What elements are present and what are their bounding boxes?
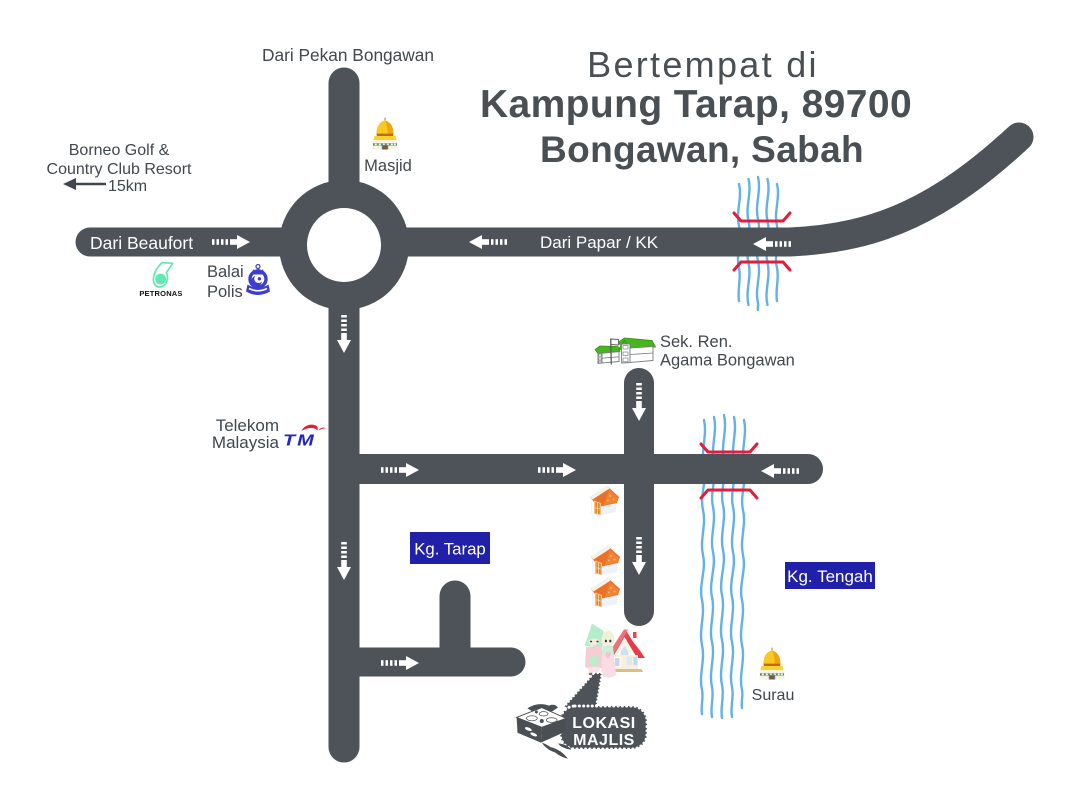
svg-text:Masjid: Masjid <box>364 157 412 175</box>
svg-text:15km: 15km <box>108 178 147 195</box>
svg-text:Balai: Balai <box>207 263 244 281</box>
svg-text:Sek. Ren.: Sek. Ren. <box>660 333 732 351</box>
svg-text:Dari Beaufort: Dari Beaufort <box>90 233 193 253</box>
svg-text:Bongawan, Sabah: Bongawan, Sabah <box>540 129 864 170</box>
svg-text:Dari Pekan Bongawan: Dari Pekan Bongawan <box>262 45 434 65</box>
svg-text:Country Club Resort: Country Club Resort <box>47 161 193 178</box>
svg-text:Borneo Golf &: Borneo Golf & <box>69 142 170 159</box>
svg-text:Malaysia: Malaysia <box>212 433 280 452</box>
svg-text:Kampung Tarap, 89700: Kampung Tarap, 89700 <box>480 83 912 126</box>
svg-text:Dari Papar / KK: Dari Papar / KK <box>540 233 659 252</box>
svg-text:Agama Bongawan: Agama Bongawan <box>660 352 795 370</box>
svg-text:PETRONAS: PETRONAS <box>139 289 182 298</box>
svg-text:MAJLIS: MAJLIS <box>573 732 635 749</box>
svg-text:LOKASI: LOKASI <box>572 715 635 732</box>
svg-text:Kg. Tarap: Kg. Tarap <box>414 540 486 559</box>
svg-text:Polis: Polis <box>207 283 243 301</box>
svg-text:Bertempat di: Bertempat di <box>587 44 819 85</box>
svg-text:Surau: Surau <box>752 687 795 704</box>
svg-text:TM: TM <box>283 431 316 449</box>
svg-text:Kg. Tengah: Kg. Tengah <box>787 567 873 586</box>
